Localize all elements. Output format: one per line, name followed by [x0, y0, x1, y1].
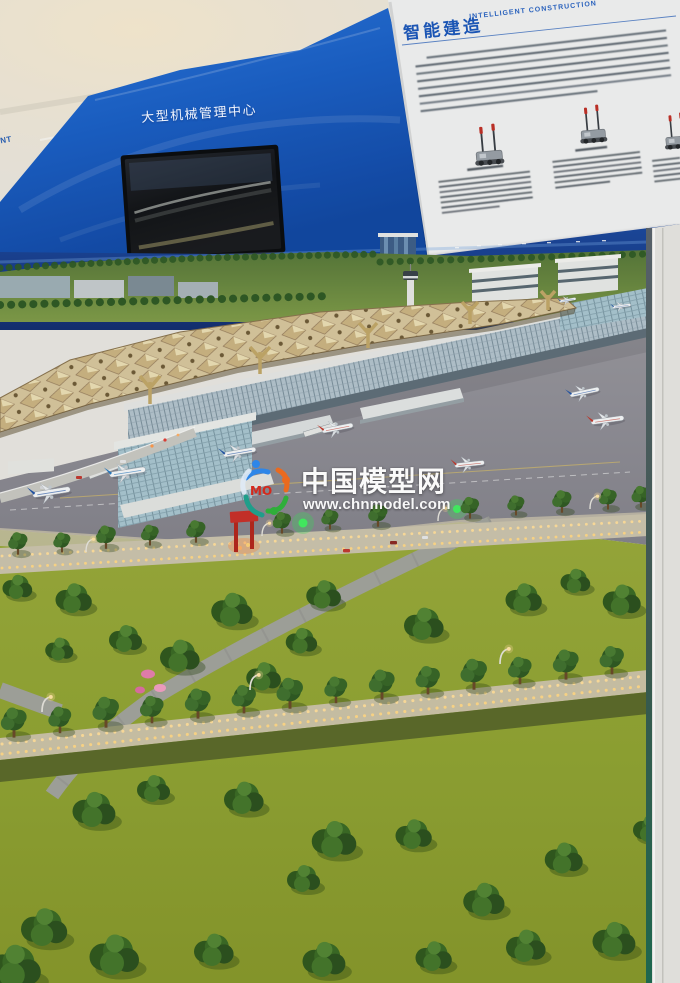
logo-text: MO [250, 484, 272, 498]
exhibition-photo: 大型机械管理中心 ANT 智能建造 INTELLIGENT CONSTRUCTI… [0, 0, 680, 983]
watermark-site-url: www.chnmodel.com [303, 496, 451, 513]
chnmodel-logo-icon: MO [234, 454, 298, 520]
watermark: MO 中国模型网 www.chnmodel.com [230, 448, 490, 532]
watermark-site-name: 中国模型网 [301, 460, 446, 500]
